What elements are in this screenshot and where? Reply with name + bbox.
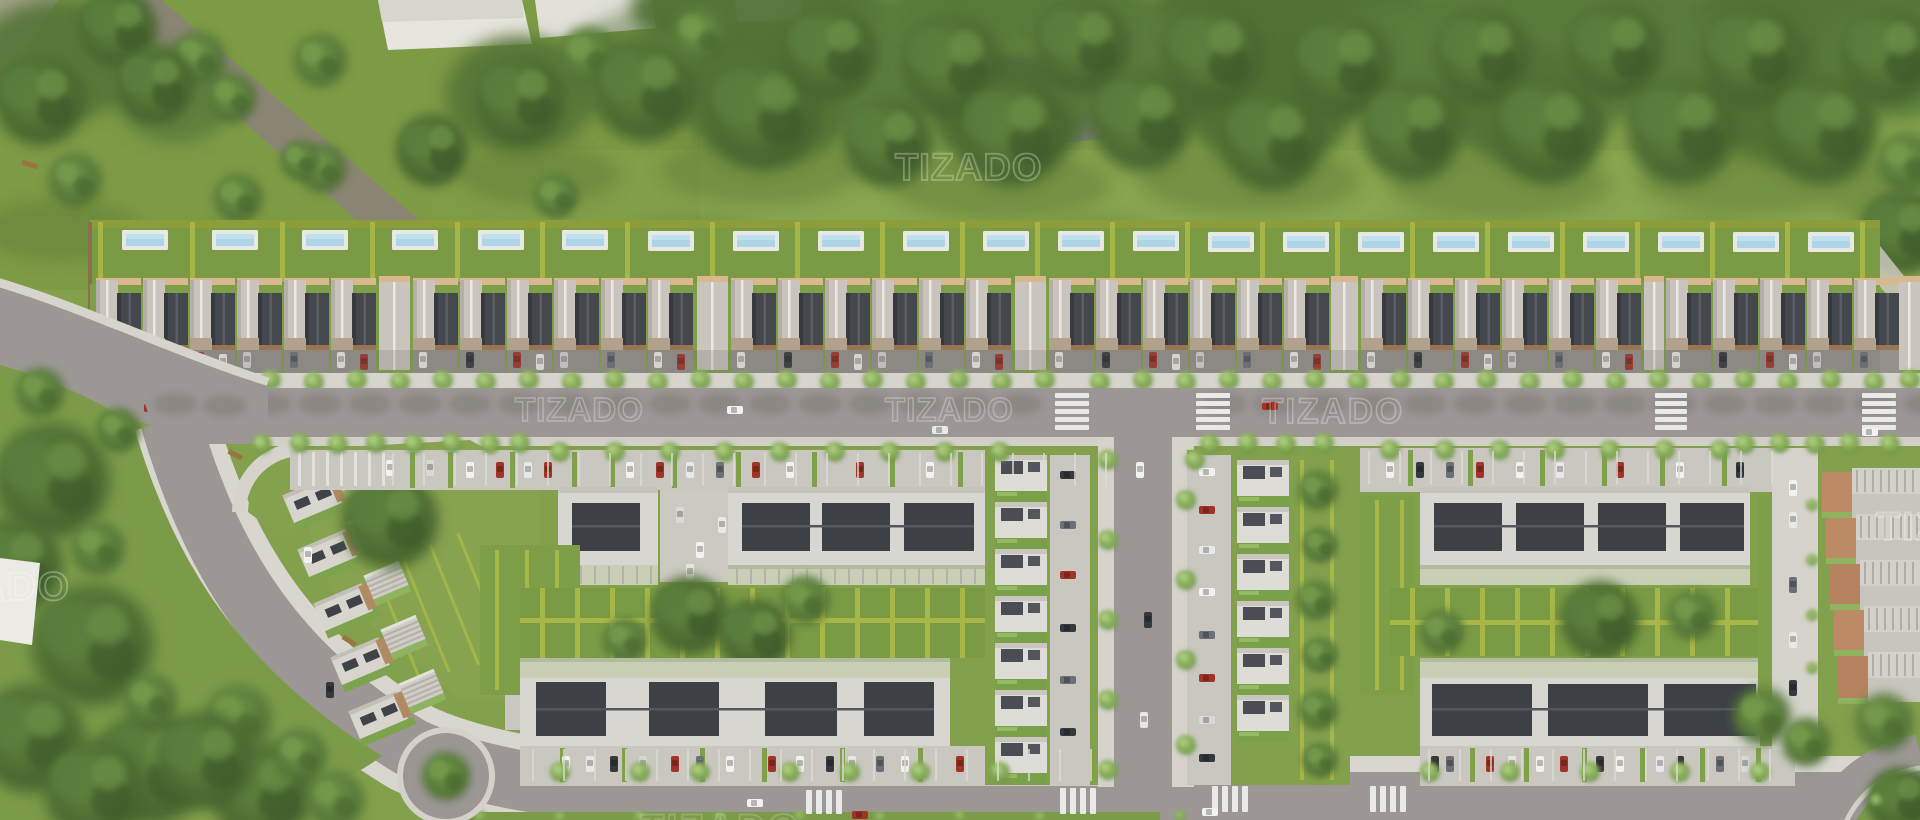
svg-text:TIZADO: TIZADO [1262, 392, 1404, 431]
svg-text:TIZADO: TIZADO [515, 391, 644, 428]
svg-text:TIZ: TIZ [1876, 505, 1920, 549]
svg-text:TIZADO: TIZADO [0, 565, 71, 609]
svg-text:TIZADO: TIZADO [895, 147, 1042, 189]
svg-text:TIZADO: TIZADO [885, 391, 1014, 428]
svg-text:TIZADO: TIZADO [640, 807, 801, 820]
